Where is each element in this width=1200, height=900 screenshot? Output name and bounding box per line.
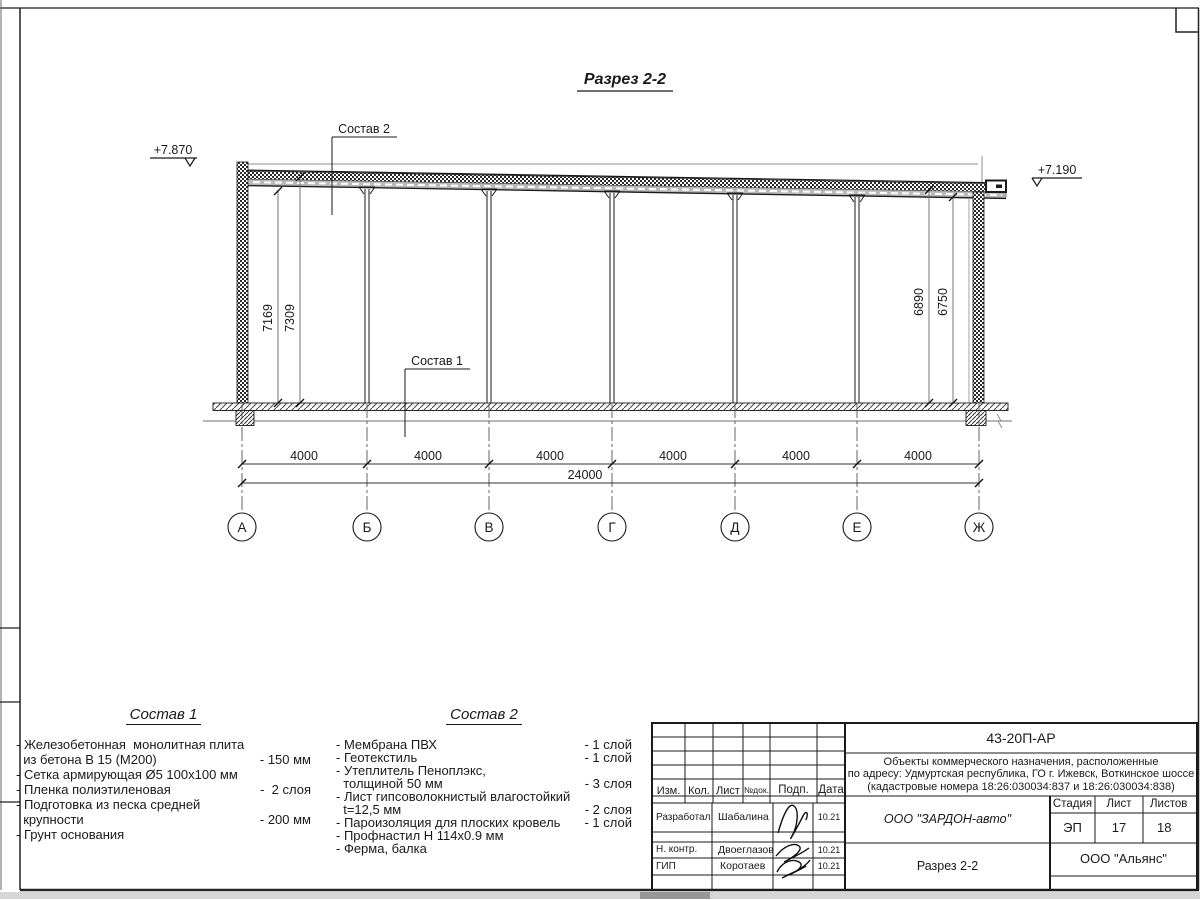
composition2-title: Состав 2 xyxy=(336,706,632,723)
list-item: - Железобетонная монолитная плита xyxy=(16,737,311,752)
right-foundation xyxy=(966,411,986,426)
axis-label: Д xyxy=(730,520,739,535)
tb-date: 10.21 xyxy=(813,803,845,832)
drawing-title: Разрез 2-2 xyxy=(584,71,666,88)
tb-sheet-value: 17 xyxy=(1095,813,1143,843)
list-item: - Геотекстиль- 1 слой xyxy=(336,750,632,763)
right-wall xyxy=(973,192,984,404)
tb-col-podp: Подп. xyxy=(770,779,817,803)
tb-name: Коротаев xyxy=(712,858,773,875)
axis-label: В xyxy=(484,520,493,535)
bay-dimension: 4000 xyxy=(414,449,442,463)
list-item: из бетона В 15 (М200)- 150 мм xyxy=(16,752,311,767)
list-item: - Грунт основания xyxy=(16,827,311,842)
tb-role: Н. контр. xyxy=(652,842,712,858)
axis-label: Е xyxy=(852,520,861,535)
tb-col-kol: Кол. xyxy=(685,779,713,803)
left-wall xyxy=(237,162,248,404)
elevation-right-label: +7.190 xyxy=(1038,163,1077,177)
doc-number: 43-20П-АР xyxy=(845,723,1197,753)
axis-label: Б xyxy=(363,520,372,535)
axis-label: Ж xyxy=(973,520,986,535)
roof xyxy=(238,170,1006,199)
tb-col-data: Дата xyxy=(817,779,845,803)
tb-section-title: Разрез 2-2 xyxy=(845,843,1050,890)
horizontal-dimensions: 4000 4000 4000 4000 4000 4000 24000 xyxy=(238,449,983,487)
list-item: - Подготовка из песка средней xyxy=(16,797,311,812)
tb-role: Разработал xyxy=(652,803,712,832)
tb-role: ГИП xyxy=(652,858,712,875)
tb-date: 10.21 xyxy=(813,858,845,875)
axis-grid: А Б В Г Д Е Ж xyxy=(228,404,993,541)
list-item: - Мембрана ПВХ- 1 слой xyxy=(336,737,632,750)
tb-stage-label: Стадия xyxy=(1050,796,1095,813)
vertical-dimension: 7309 xyxy=(283,304,297,332)
tb-contractor: ООО "Альянс" xyxy=(1050,843,1197,876)
vertical-dimension: 6750 xyxy=(936,288,950,316)
vertical-dimension: 6890 xyxy=(912,288,926,316)
bay-dimension: 4000 xyxy=(904,449,932,463)
vertical-dimension: 7169 xyxy=(261,304,275,332)
tb-stage-value: ЭП xyxy=(1050,813,1095,843)
elevation-left-label: +7.870 xyxy=(154,143,193,157)
bay-dimension: 4000 xyxy=(290,449,318,463)
total-dimension: 24000 xyxy=(568,468,603,482)
tb-sheet-label: Лист xyxy=(1095,796,1143,813)
floor-slab xyxy=(213,403,1008,411)
composition1-leader-label: Состав 1 xyxy=(411,354,463,368)
bay-dimension: 4000 xyxy=(782,449,810,463)
drawing-sheet: А Б В Г Д Е Ж 4000 4000 4000 4000 4000 4… xyxy=(0,0,1200,900)
composition1-title: Состав 1 xyxy=(16,706,311,723)
axis-label: А xyxy=(237,520,246,535)
project-description: Объекты коммерческого назначения, распол… xyxy=(845,753,1197,796)
tb-date: 10.21 xyxy=(813,842,845,858)
bay-dimension: 4000 xyxy=(659,449,687,463)
bay-dimension: 4000 xyxy=(536,449,564,463)
tb-name: Шабалина xyxy=(712,803,773,832)
composition2-leader-label: Состав 2 xyxy=(338,122,390,136)
tb-col-list: Лист xyxy=(713,779,743,803)
tb-col-ndok: №док. xyxy=(743,779,770,803)
tb-col-izm: Изм. xyxy=(652,779,685,803)
list-item: крупности- 200 мм xyxy=(16,812,311,827)
composition2-list: Состав 2 - Мембрана ПВХ- 1 слой - Геотек… xyxy=(336,706,632,854)
composition1-list: Состав 1 - Железобетонная монолитная пли… xyxy=(16,706,311,842)
list-item: - Пароизоляция для плоских кровель- 1 сл… xyxy=(336,815,632,828)
list-item: - Пленка полиэтиленовая- 2 слоя xyxy=(16,782,311,797)
building-section xyxy=(203,156,1012,428)
tb-name: Двоеглазов xyxy=(712,842,773,858)
columns xyxy=(359,187,865,403)
tb-sheets-value: 18 xyxy=(1143,813,1197,843)
signature-dvoeglazov xyxy=(776,844,809,862)
axis-label: Г xyxy=(608,520,616,535)
tb-sheets-label: Листов xyxy=(1143,796,1197,813)
left-foundation xyxy=(236,411,254,426)
tb-company: ООО "ЗАРДОН-авто" xyxy=(845,796,1050,843)
list-item: - Сетка армирующая Ø5 100х100 мм xyxy=(16,767,311,782)
signature-shabalina xyxy=(778,805,807,838)
